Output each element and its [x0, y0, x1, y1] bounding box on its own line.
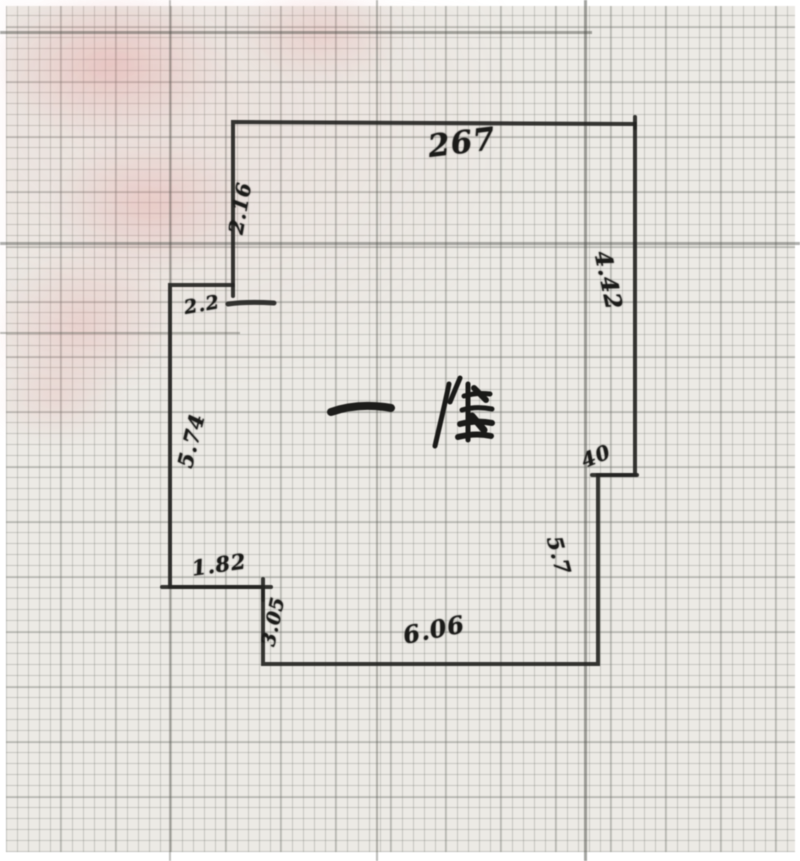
center-dash-mark	[331, 406, 391, 412]
scan-layer: 267 2.16 2.2 5.74 4.42 40 5.7 6.06 1.82 …	[0, 0, 800, 861]
building-outline-svg	[0, 0, 800, 861]
scanned-plan-image: 267 2.16 2.2 5.74 4.42 40 5.7 6.06 1.82 …	[0, 0, 800, 861]
center-character-mark	[435, 378, 492, 446]
dimension-leader-tick	[228, 302, 274, 304]
